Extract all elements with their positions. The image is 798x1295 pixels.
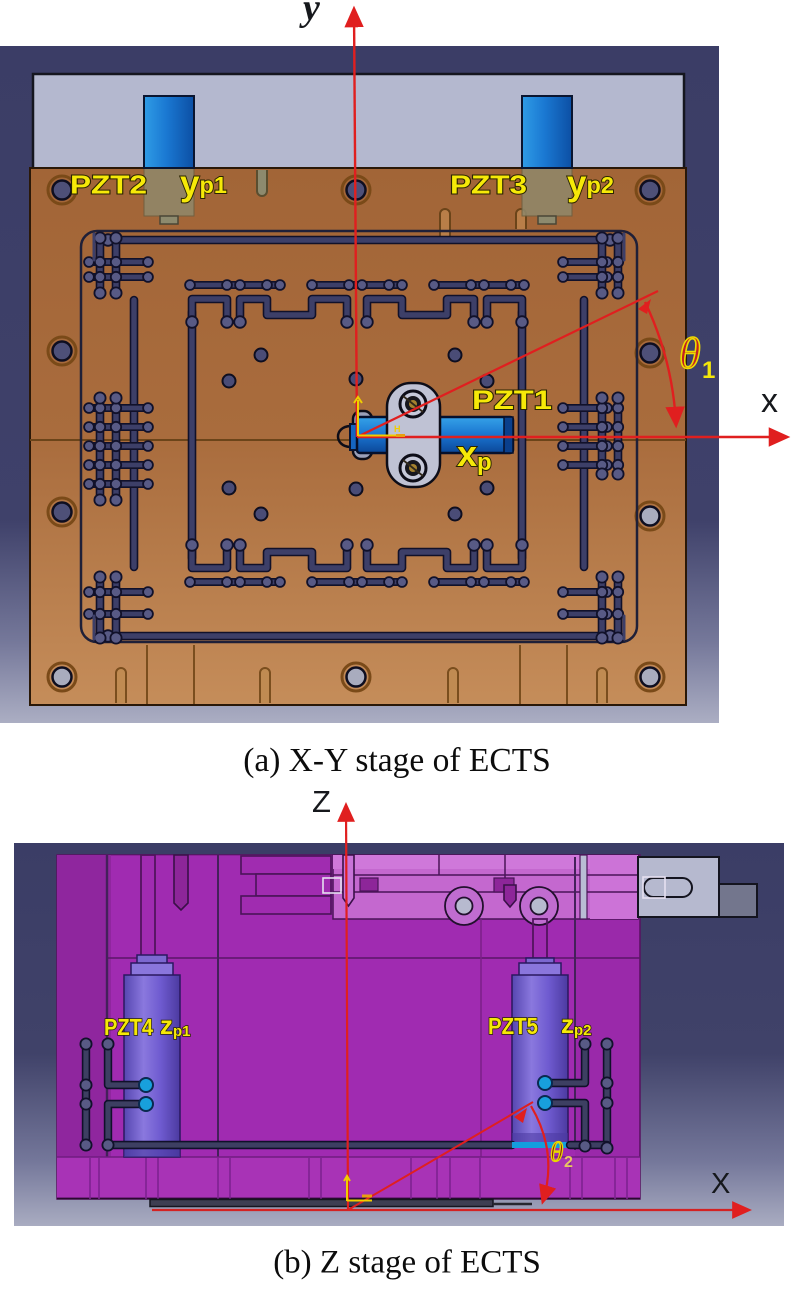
svg-text:θ: θ: [550, 1137, 563, 1167]
svg-text:PZT5: PZT5: [488, 1013, 538, 1039]
svg-text:PZT1: PZT1: [472, 385, 552, 415]
svg-text:θ: θ: [679, 329, 701, 378]
svg-text:X: X: [711, 1168, 730, 1200]
svg-text:PZT2: PZT2: [70, 172, 147, 200]
svg-text:H: H: [394, 424, 401, 434]
svg-text:1: 1: [702, 357, 715, 384]
svg-text:PZT3: PZT3: [450, 172, 527, 200]
svg-text:PZT4: PZT4: [104, 1014, 153, 1040]
svg-text:2: 2: [564, 1154, 573, 1171]
svg-text:(a) X-Y stage of ECTS: (a) X-Y stage of ECTS: [243, 742, 551, 779]
svg-text:x: x: [761, 382, 778, 420]
svg-text:y: y: [299, 0, 320, 29]
svg-text:Z: Z: [312, 784, 331, 819]
svg-text:(b) Z stage of ECTS: (b) Z stage of ECTS: [273, 1245, 541, 1281]
